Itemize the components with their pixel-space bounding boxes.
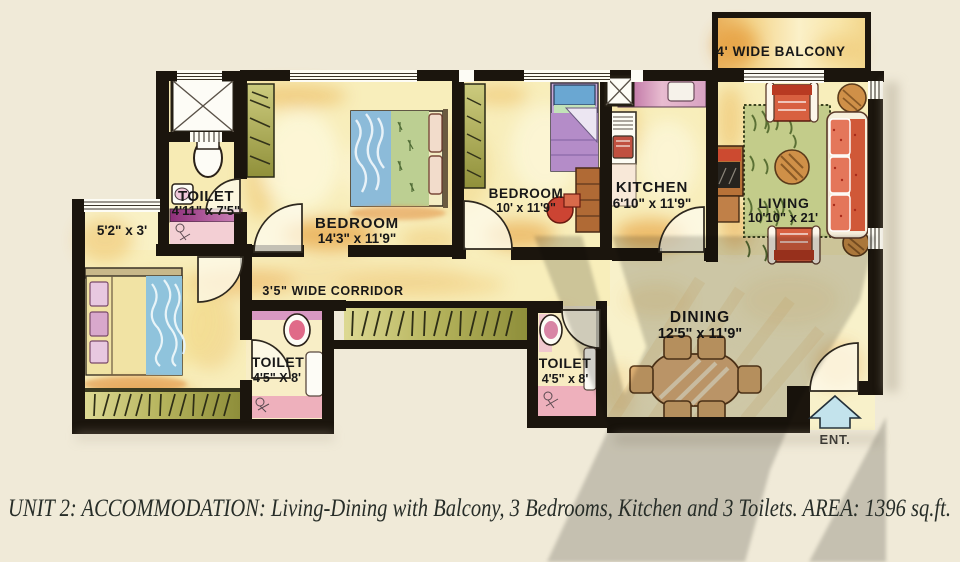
- svg-text:4' WIDE BALCONY: 4' WIDE BALCONY: [716, 44, 845, 59]
- svg-text:4'5" X 8': 4'5" X 8': [253, 371, 301, 385]
- svg-text:6'10" x 11'9": 6'10" x 11'9": [613, 196, 692, 211]
- svg-text:4'5" x 8': 4'5" x 8': [542, 372, 589, 386]
- svg-text:TOILET: TOILET: [252, 354, 305, 370]
- svg-text:UNIT 2: ACCOMMODATION: Living-: UNIT 2: ACCOMMODATION: Living-Dining wit…: [8, 495, 951, 522]
- svg-text:KITCHEN: KITCHEN: [616, 179, 688, 196]
- svg-text:BEDROOM: BEDROOM: [489, 186, 564, 201]
- svg-text:4'11" x 7'5": 4'11" x 7'5": [172, 203, 240, 218]
- svg-text:10'10" x 21': 10'10" x 21': [748, 210, 818, 225]
- svg-text:10' x 11'9": 10' x 11'9": [496, 201, 556, 215]
- svg-text:3'5" WIDE CORRIDOR: 3'5" WIDE CORRIDOR: [262, 284, 403, 298]
- svg-text:5'2" x 3': 5'2" x 3': [97, 223, 147, 238]
- svg-text:14'3" x 11'9": 14'3" x 11'9": [318, 231, 397, 246]
- svg-text:LIVING: LIVING: [758, 195, 809, 211]
- svg-text:BEDROOM: BEDROOM: [315, 215, 399, 232]
